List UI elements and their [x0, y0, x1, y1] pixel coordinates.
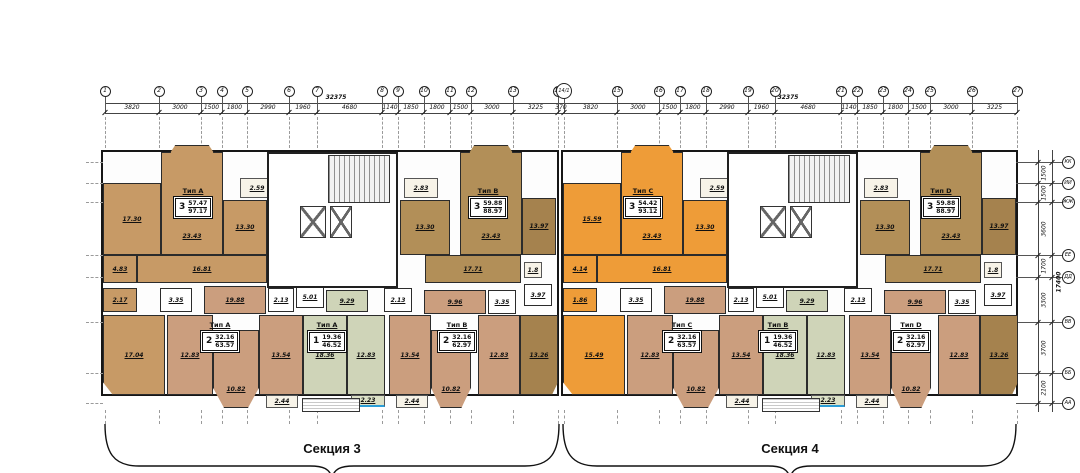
- axis-circle: 21: [836, 86, 847, 97]
- apartment-living-area: 32.16: [677, 334, 696, 342]
- apartment-card: 232.1662.97: [891, 330, 931, 353]
- dimension-label: 1500: [453, 104, 468, 112]
- apartment-card: 357.4797.17: [173, 196, 213, 219]
- apartment-room-count: 3: [629, 203, 635, 212]
- axis-circle: 5: [242, 86, 253, 97]
- apartment-card-frame: 232.1662.97: [439, 332, 475, 351]
- axis-circle: ЖЖ: [1062, 196, 1075, 209]
- apartment-card: 359.8888.97: [468, 196, 508, 219]
- apartment-card: 354.4293.12: [623, 196, 663, 219]
- axis-circle: 13: [508, 86, 519, 97]
- dimension-label: 1960: [295, 104, 310, 112]
- apartment-type-label: Тип А: [317, 321, 338, 329]
- apartment-total-area: 62.97: [906, 342, 925, 349]
- dimension-label: 3600: [1041, 221, 1048, 236]
- dimension-label: 1500: [662, 104, 677, 112]
- apartment-living-area: 19.36: [773, 334, 792, 342]
- apartment-areas: 19.3646.52: [322, 334, 341, 349]
- axis-circle: 7: [312, 86, 323, 97]
- apartment-areas: 32.1663.57: [677, 334, 696, 349]
- axis-circle: 18: [701, 86, 712, 97]
- apartment-type-label: Тип С: [672, 321, 693, 329]
- section-braces: [0, 0, 1080, 473]
- apartment-type-label: Тип А: [183, 187, 204, 195]
- dimension-label: 1800: [685, 104, 700, 112]
- axis-circle: 10: [419, 86, 430, 97]
- apartment-living-area: 32.16: [452, 334, 471, 342]
- axis-circle: ЕЕ: [1062, 249, 1075, 262]
- dimension-label: 1960: [754, 104, 769, 112]
- apartment-card: 232.1662.97: [437, 330, 477, 353]
- apartment-total-area: 62.97: [452, 342, 471, 349]
- apartment-card: 232.1663.57: [200, 330, 240, 353]
- dimension-label: 1500: [1041, 185, 1048, 200]
- apartment-total-area: 88.97: [936, 208, 955, 215]
- section3-brace: [105, 424, 559, 473]
- apartment-total-area: 97.17: [188, 208, 207, 215]
- dimension-label: 3820: [583, 104, 598, 112]
- dimension-label: 3000: [172, 104, 187, 112]
- axis-circle: 6: [284, 86, 295, 97]
- apartment-room-count: 2: [206, 337, 212, 346]
- axis-circle: 3: [196, 86, 207, 97]
- apartment-card-frame: 359.8888.97: [470, 198, 506, 217]
- apartment-living-area: 57.47: [188, 200, 207, 208]
- axis-circle: АА: [1062, 397, 1075, 410]
- apartment-card-frame: 359.8888.97: [923, 198, 959, 217]
- dimension-label: 1700: [1041, 258, 1048, 273]
- dimension-label: 1500: [911, 104, 926, 112]
- dimension-label: 1850: [403, 104, 418, 112]
- apartment-card: 359.8888.97: [921, 196, 961, 219]
- apartment-room-count: 1: [313, 337, 319, 346]
- apartment-living-area: 59.88: [483, 200, 502, 208]
- apartment-areas: 32.1662.97: [452, 334, 471, 349]
- axis-circle: КК: [1062, 156, 1075, 169]
- apartment-total-area: 46.52: [322, 342, 341, 349]
- axis-circle: 1: [100, 86, 111, 97]
- apartment-card: 119.3646.52: [307, 330, 347, 353]
- axis-circle: 16: [654, 86, 665, 97]
- apartment-areas: 57.4797.17: [188, 200, 207, 215]
- axis-circle: 8: [377, 86, 388, 97]
- dimension-label: 1800: [227, 104, 242, 112]
- axis-circle: 4: [217, 86, 228, 97]
- apartment-card-frame: 354.4293.12: [625, 198, 661, 217]
- axis-circle: 20: [770, 86, 781, 97]
- axis-circle: 15: [612, 86, 623, 97]
- dimension-label: 4680: [342, 104, 357, 112]
- dimension-label: 1800: [429, 104, 444, 112]
- apartment-type-label: Тип D: [930, 187, 951, 195]
- apartment-living-area: 32.16: [215, 334, 234, 342]
- overall-dimension-label: 32375: [778, 94, 799, 102]
- floor-plan-drawing: Секция 3 Секция 4 123456789101112131414/…: [0, 0, 1080, 473]
- apartment-card-frame: 119.3646.52: [309, 332, 345, 351]
- dimension-label: 3820: [124, 104, 139, 112]
- dimension-label: 2990: [260, 104, 275, 112]
- dimension-label: 1800: [888, 104, 903, 112]
- axis-circle: 11: [445, 86, 456, 97]
- dimension-label: 3000: [484, 104, 499, 112]
- apartment-type-label: Тип С: [633, 187, 654, 195]
- section4-brace: [563, 424, 1016, 473]
- apartment-room-count: 2: [443, 337, 449, 346]
- axis-circle: 22: [852, 86, 863, 97]
- apartment-type-label: Тип D: [900, 321, 921, 329]
- axis-circle: 17: [675, 86, 686, 97]
- apartment-areas: 59.8888.97: [483, 200, 502, 215]
- apartment-type-label: Тип В: [768, 321, 789, 329]
- axis-circle: 27: [1012, 86, 1023, 97]
- apartment-type-label: Тип А: [210, 321, 231, 329]
- apartment-card-frame: 232.1663.57: [664, 332, 700, 351]
- apartment-total-area: 93.12: [638, 208, 657, 215]
- dimension-label: 1140: [841, 104, 856, 112]
- apartment-total-area: 63.57: [677, 342, 696, 349]
- axis-circle: ДД: [1062, 271, 1075, 284]
- apartment-card: 232.1663.57: [662, 330, 702, 353]
- apartment-areas: 19.3646.52: [773, 334, 792, 349]
- apartment-type-label: Тип В: [447, 321, 468, 329]
- axis-circle: 2: [154, 86, 165, 97]
- apartment-living-area: 59.88: [936, 200, 955, 208]
- dimension-label: 3300: [1041, 292, 1048, 307]
- dimension-label: 3225: [528, 104, 543, 112]
- apartment-living-area: 19.36: [322, 334, 341, 342]
- apartment-card-frame: 232.1663.57: [202, 332, 238, 351]
- dimension-label: 370: [555, 104, 566, 112]
- apartment-room-count: 3: [474, 203, 480, 212]
- axis-circle: 25: [925, 86, 936, 97]
- apartment-living-area: 32.16: [906, 334, 925, 342]
- axis-circle: 23: [878, 86, 889, 97]
- apartment-room-count: 3: [179, 203, 185, 212]
- axis-circle: 26: [967, 86, 978, 97]
- apartment-room-count: 1: [764, 337, 770, 346]
- dimension-label: 1850: [862, 104, 877, 112]
- apartment-areas: 32.1663.57: [215, 334, 234, 349]
- apartment-living-area: 54.42: [638, 200, 657, 208]
- apartment-total-area: 63.57: [215, 342, 234, 349]
- apartment-card-frame: 119.3646.52: [760, 332, 796, 351]
- dimension-label: 3000: [943, 104, 958, 112]
- apartment-card: 119.3646.52: [758, 330, 798, 353]
- apartment-areas: 54.4293.12: [638, 200, 657, 215]
- dimension-label: 2100: [1041, 380, 1048, 395]
- dimension-label: 1500: [1041, 165, 1048, 180]
- apartment-card-frame: 232.1662.97: [893, 332, 929, 351]
- axis-circle: ББ: [1062, 367, 1075, 380]
- dimension-label: 3000: [630, 104, 645, 112]
- apartment-room-count: 2: [668, 337, 674, 346]
- overall-dimension-label: 32375: [326, 94, 347, 102]
- apartment-type-label: Тип В: [478, 187, 499, 195]
- dimension-label: 4680: [800, 104, 815, 112]
- axis-circle: 24: [903, 86, 914, 97]
- dimension-label: 1140: [382, 104, 397, 112]
- axis-circle: 12: [466, 86, 477, 97]
- apartment-card-frame: 357.4797.17: [175, 198, 211, 217]
- axis-circle: 14/1: [556, 83, 572, 99]
- apartment-total-area: 46.52: [773, 342, 792, 349]
- axis-circle: ИИ: [1062, 177, 1075, 190]
- axis-circle: 19: [743, 86, 754, 97]
- dimension-label: 3225: [987, 104, 1002, 112]
- apartment-areas: 32.1662.97: [906, 334, 925, 349]
- apartment-room-count: 3: [927, 203, 933, 212]
- apartment-areas: 59.8888.97: [936, 200, 955, 215]
- apartment-room-count: 2: [897, 337, 903, 346]
- dimension-label: 3700: [1041, 340, 1048, 355]
- dimension-label: 1500: [204, 104, 219, 112]
- axis-circle: ВВ: [1062, 316, 1075, 329]
- dimension-label: 2990: [719, 104, 734, 112]
- apartment-total-area: 88.97: [483, 208, 502, 215]
- axis-circle: 9: [393, 86, 404, 97]
